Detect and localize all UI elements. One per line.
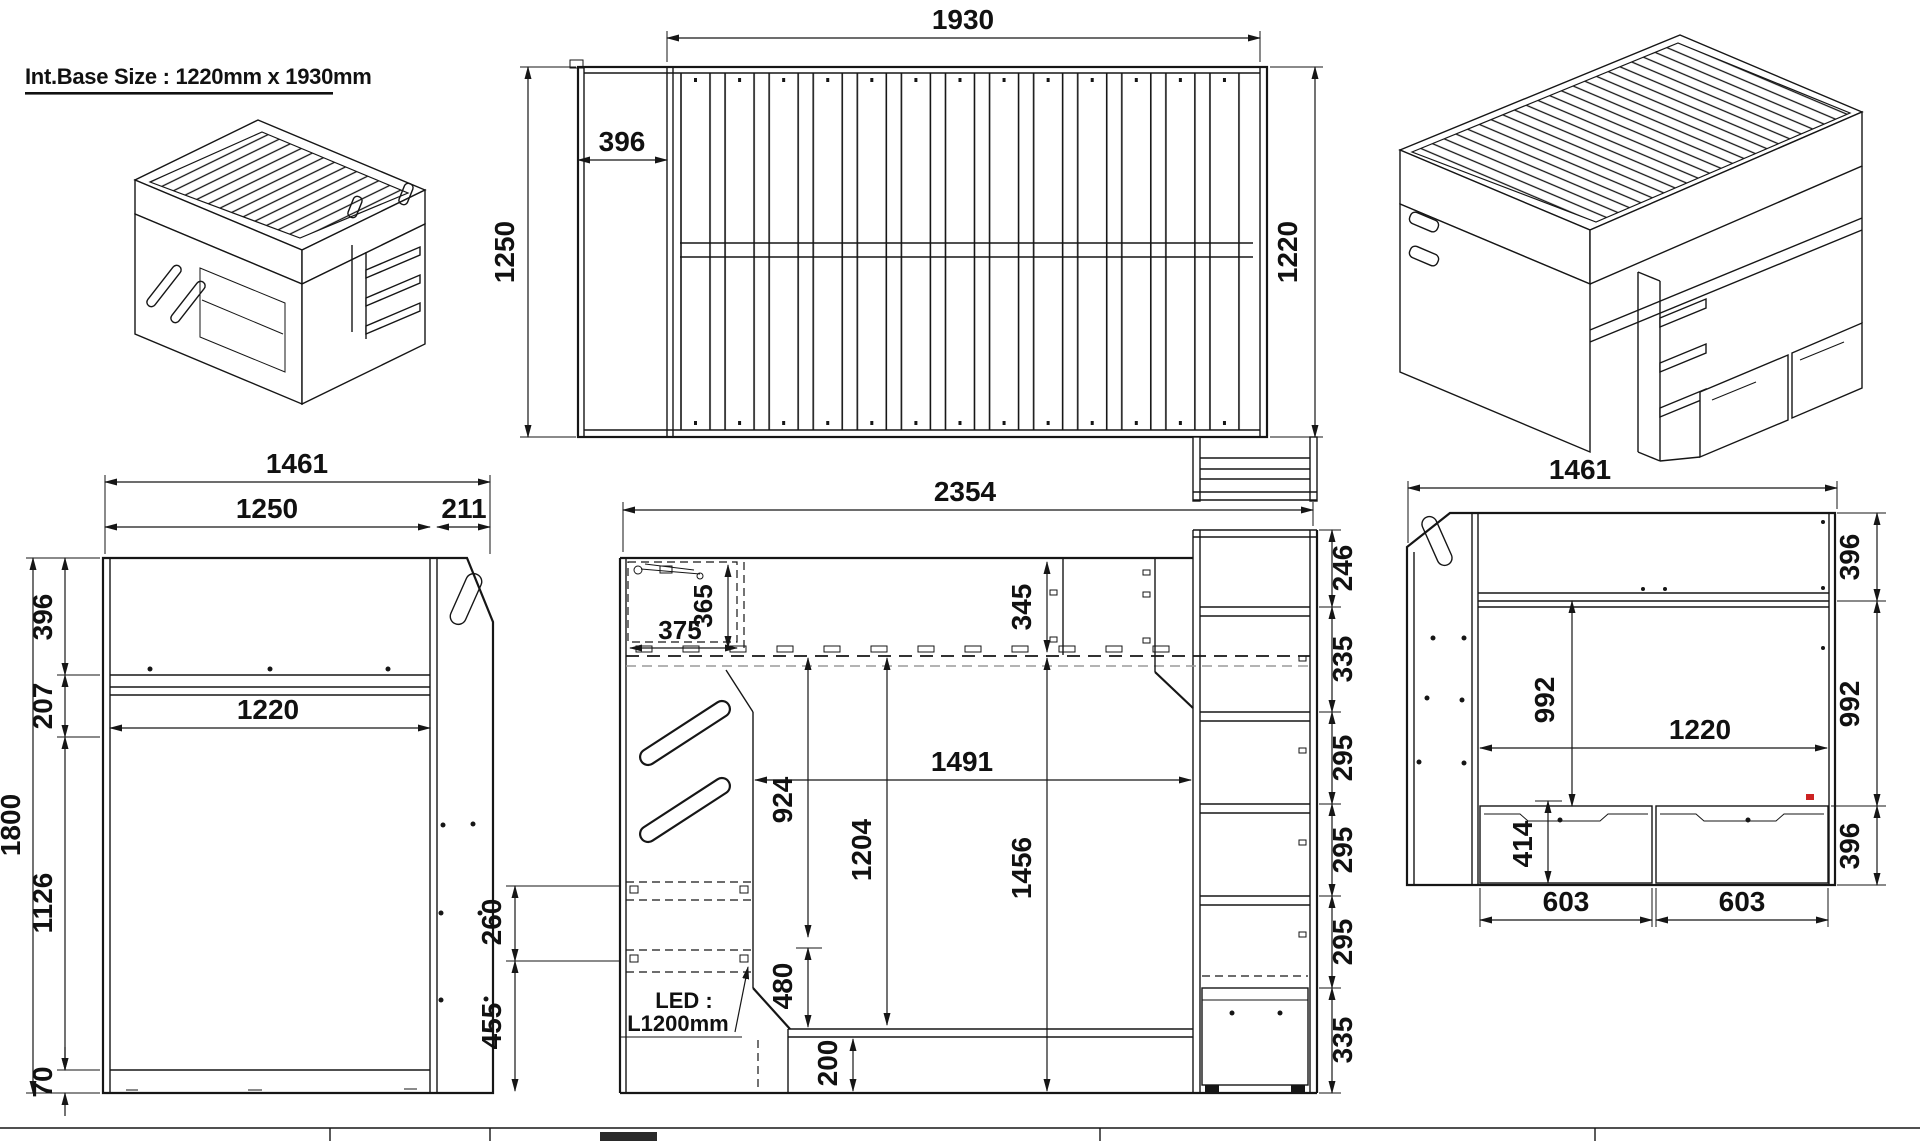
led-strip-hidden [626,882,752,972]
dim-label: 1250 [489,221,520,283]
iso-view-top-right [1400,35,1862,461]
lift-hardware [634,564,703,579]
dim-front-floor-clearance: 1456 [1006,658,1047,1091]
dim-label: 1800 [0,794,26,856]
dim-plan-length: 1930 [667,4,1260,62]
ladder-step [1660,389,1706,417]
dim-label: 335 [1327,636,1358,683]
dim-label: 480 [767,963,798,1010]
dim-front-opening-height: 924 [767,658,808,937]
dim-label: 1491 [931,746,993,777]
dim-label: 295 [1327,735,1358,782]
dim-label: 924 [767,776,798,823]
dim-label: 1220 [1669,714,1731,745]
dim-side-left-body-width: 1250 [105,493,430,527]
red-marker [1806,794,1814,800]
cam-fittings [1050,570,1306,937]
dim-label: 211 [441,493,486,524]
dim-label: 2354 [934,476,997,507]
drawing-sheet: Int.Base Size : 1220mm x 1930mm [0,0,1920,1141]
dim-label: 396 [1834,534,1865,581]
drawer-front [1700,355,1788,457]
dim-label: 1220 [237,694,299,725]
drawer-front [1792,323,1862,418]
sheet-title: Int.Base Size : 1220mm x 1930mm [25,64,372,95]
dim-side-right-drawer1: 603 [1480,886,1652,927]
dim-label: 1250 [236,493,298,524]
drawer-front [1480,806,1652,883]
dim-side-right-chain: 396 992 396 [1831,513,1886,885]
dim-label: 396 [599,126,646,157]
dim-label: 1220 [1272,221,1303,283]
led-note: LED : L1200mm [620,967,748,1037]
dim-front-ladder-chain: 246 335 295 295 295 335 [1319,530,1358,1093]
ladder-drawer [1202,976,1308,1093]
dim-label: 1461 [1549,454,1611,485]
dim-label: 200 [812,1040,843,1087]
title-underline [25,92,333,95]
foot [1291,1085,1305,1093]
dim-side-right-drawer2: 603 [1656,886,1828,927]
front-view: LED : L1200mm 2354 375 365 345 1491 [476,476,1358,1093]
drawer-front [1656,806,1828,883]
dim-side-left-under-bunk: 1126 [27,737,100,1070]
slat-tabs [626,645,1190,654]
dim-label: 295 [1327,827,1358,874]
ladder-plan [1193,437,1317,501]
dim-plan-depth: 1250 [489,67,576,437]
dim-front-under-shelf: 200 [812,1039,853,1091]
page-title: Int.Base Size : 1220mm x 1930mm [25,64,372,89]
dim-side-left-rail-gap: 207 [27,675,100,737]
dim-front-opening-width: 1491 [755,746,1191,780]
dim-label: 396 [1834,823,1865,870]
sheet-border [0,1128,1920,1141]
dim-label: 335 [1327,1017,1358,1064]
side-view-right: 1461 992 1220 414 396 992 396 [1407,454,1886,927]
leader-arrow [735,967,748,1032]
dim-label: 260 [476,899,507,946]
dim-side-left-ladder-offset: 211 [437,493,490,527]
iso-drawers [1660,323,1862,461]
dim-front-overall-width: 2354 [623,476,1313,552]
led-note-line1: LED : [655,988,712,1013]
dim-label: 603 [1543,886,1590,917]
dim-label: 603 [1719,886,1766,917]
handle-slot-icon [637,698,733,768]
dim-plan-width: 1220 [1270,67,1323,437]
iso-view-top-left [135,120,425,404]
iso-ladder [1638,272,1706,461]
handle-slot-icon [637,775,733,845]
dim-front-top-rail: 345 [1006,562,1047,652]
dim-label: 992 [1834,681,1865,728]
dim-label: 992 [1529,677,1560,724]
dim-label: 1204 [846,818,877,881]
plan-view: 1930 396 1250 1220 [489,4,1323,501]
side-view-left: 1461 1250 211 396 207 1220 [0,448,493,1116]
dim-front-led-spacing: 260 [476,886,620,961]
drawing-canvas: Int.Base Size : 1220mm x 1930mm [0,0,1920,1141]
dim-front-cabinet-width: 375 [630,615,737,648]
dim-label: 414 [1507,820,1538,867]
dim-label: 1930 [932,4,994,35]
dim-side-left-upper-rail: 396 [27,558,100,675]
ladder-step [1660,344,1706,372]
dim-label: 295 [1327,919,1358,966]
dim-label: 207 [27,683,58,730]
dim-label: 1456 [1006,837,1037,899]
dim-label: 365 [688,584,718,627]
dim-label: 1126 [27,873,58,934]
dim-label: 1461 [266,448,328,479]
title-block-cell [600,1132,657,1141]
dim-label: 396 [27,594,58,641]
dim-label: 246 [1327,545,1358,592]
dim-front-shelf: 480 [767,948,822,1027]
ladder-rungs [1200,607,1310,905]
dim-label: 455 [476,1003,507,1050]
plan-slats [680,73,1253,430]
dim-label: 70 [27,1066,58,1097]
dim-front-bunk-clearance: 1204 [846,658,887,1025]
dim-label: 345 [1006,584,1037,631]
foot [1205,1085,1219,1093]
led-note-line2: L1200mm [627,1011,729,1036]
